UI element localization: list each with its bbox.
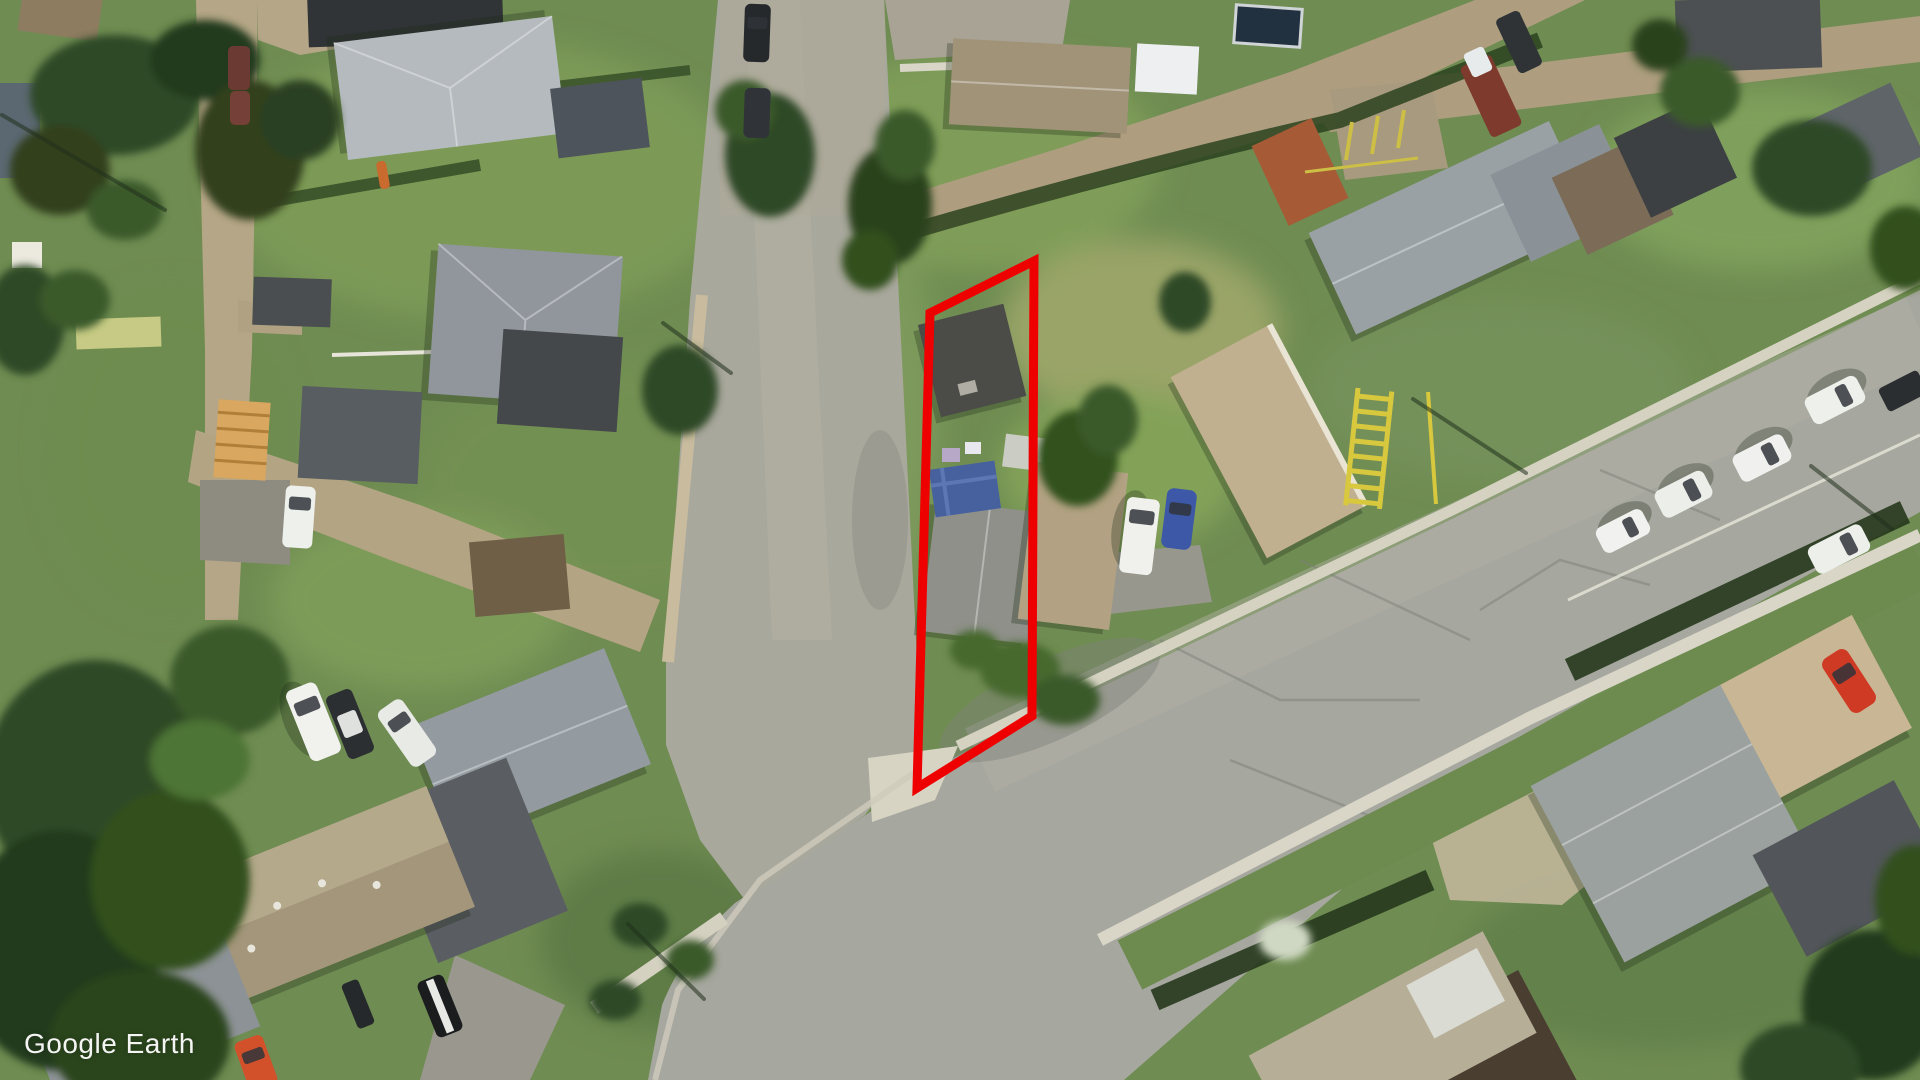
satellite-view[interactable]: Google Earth — [0, 0, 1920, 1080]
blue-tarp — [929, 461, 1001, 518]
aerial-imagery — [0, 0, 1920, 1080]
google-earth-watermark: Google Earth — [24, 1028, 195, 1060]
